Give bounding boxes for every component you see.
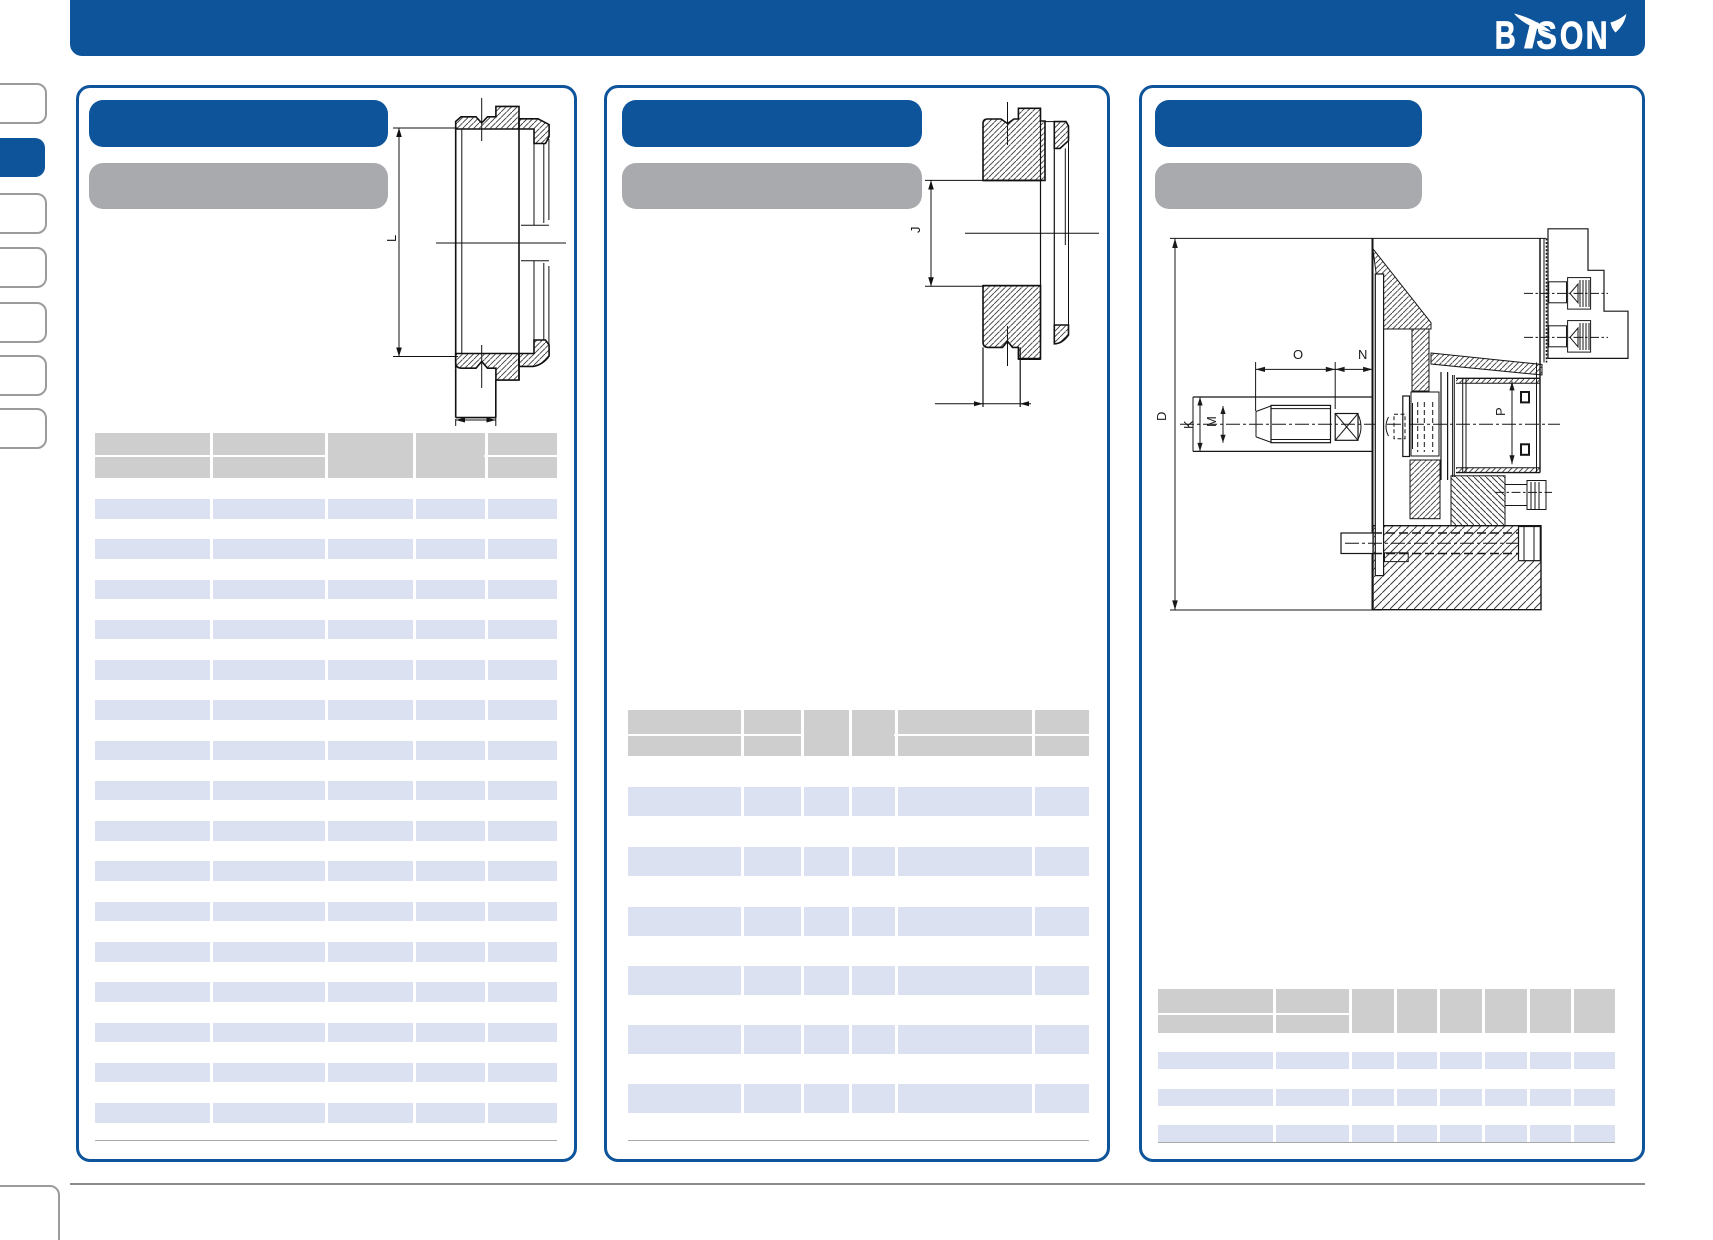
svg-text:B: B xyxy=(1495,15,1516,58)
svg-text:K: K xyxy=(1181,420,1196,429)
svg-text:L: L xyxy=(384,235,399,242)
svg-text:D: D xyxy=(1154,412,1169,421)
svg-text:J: J xyxy=(908,227,923,234)
svg-text:N: N xyxy=(1358,347,1367,362)
svg-text:S: S xyxy=(1536,15,1557,58)
svg-text:M: M xyxy=(1204,416,1219,427)
svg-text:O: O xyxy=(1560,15,1584,58)
svg-text:O: O xyxy=(1293,347,1303,362)
svg-text:P: P xyxy=(1493,407,1508,416)
svg-text:N: N xyxy=(1586,15,1608,58)
